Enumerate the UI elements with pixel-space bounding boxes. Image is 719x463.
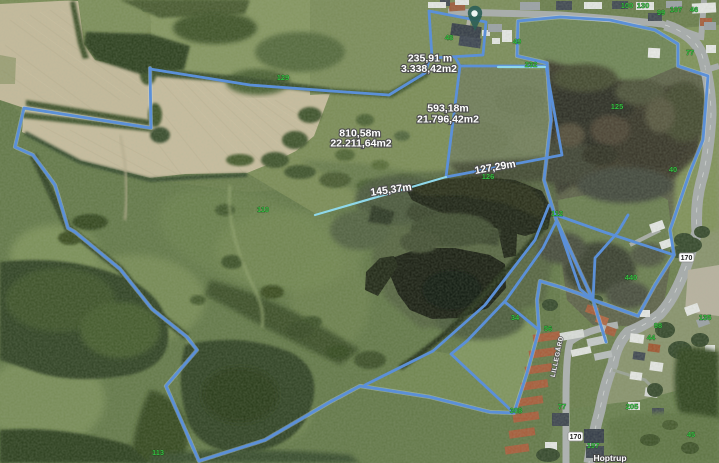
svg-text:110: 110 (257, 205, 269, 214)
svg-text:205: 205 (626, 402, 639, 411)
svg-text:113: 113 (152, 448, 164, 457)
svg-text:135: 135 (699, 313, 712, 322)
svg-text:21.796,42m2: 21.796,42m2 (417, 114, 479, 126)
svg-text:56: 56 (544, 324, 552, 333)
svg-text:22.211,64m2: 22.211,64m2 (330, 138, 391, 150)
svg-text:126: 126 (482, 172, 495, 181)
svg-text:197: 197 (587, 441, 600, 450)
svg-text:45: 45 (687, 430, 695, 439)
svg-text:3.338,42m2: 3.338,42m2 (401, 63, 457, 75)
svg-text:130: 130 (637, 1, 650, 10)
svg-text:49: 49 (513, 37, 521, 46)
svg-text:40: 40 (669, 165, 677, 174)
svg-text:99: 99 (657, 8, 665, 17)
svg-text:170: 170 (570, 434, 582, 441)
svg-text:440: 440 (625, 273, 638, 282)
svg-text:Hoptrup: Hoptrup (593, 453, 626, 463)
svg-text:170: 170 (681, 255, 693, 262)
svg-text:129: 129 (277, 73, 290, 82)
svg-text:125: 125 (611, 102, 624, 111)
svg-text:44: 44 (647, 333, 656, 342)
svg-text:77: 77 (686, 48, 694, 57)
svg-text:308: 308 (510, 406, 523, 415)
svg-text:98: 98 (654, 321, 662, 330)
svg-text:100: 100 (621, 1, 634, 10)
svg-text:107: 107 (670, 5, 683, 14)
svg-text:112: 112 (551, 209, 563, 218)
svg-text:34: 34 (511, 313, 520, 322)
svg-text:77: 77 (558, 402, 566, 411)
svg-text:48: 48 (445, 33, 453, 42)
svg-text:46: 46 (690, 5, 698, 14)
svg-text:232: 232 (525, 60, 538, 69)
